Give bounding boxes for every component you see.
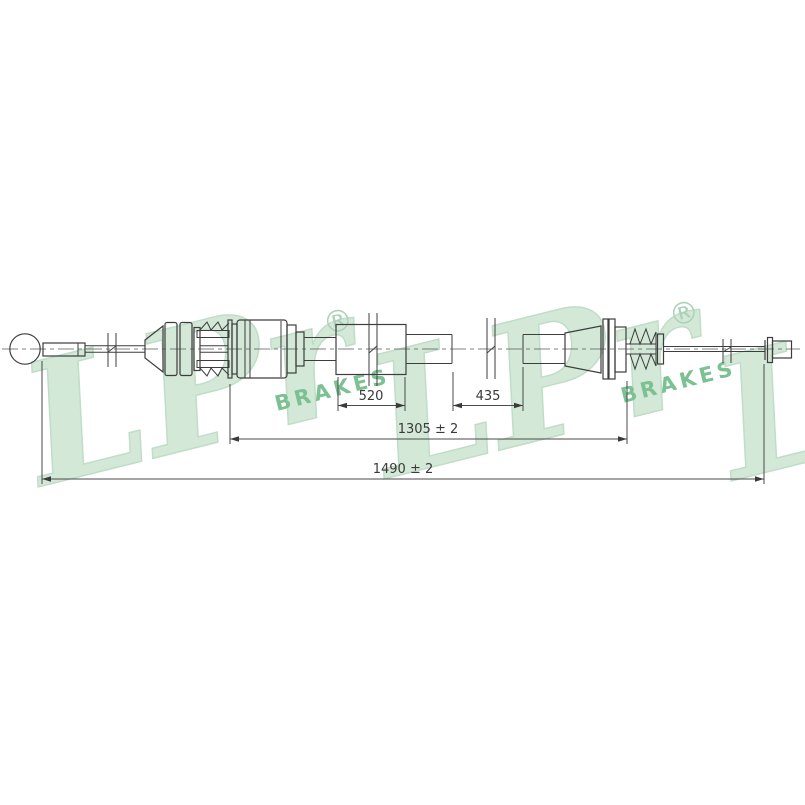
brake-cable-technical-drawing: LPr ® BRAKES LPr ® BRAKES LPr ® BRAKES <box>0 0 805 805</box>
dim-label-520: 520 <box>359 389 384 404</box>
watermark-brand-text: LPr <box>693 244 805 520</box>
watermark-left: LPr ® BRAKES <box>0 245 405 526</box>
drawing-canvas: LPr ® BRAKES LPr ® BRAKES LPr ® BRAKES <box>0 0 805 805</box>
dim-label-435: 435 <box>476 389 501 404</box>
dim-label-1305: 1305 ± 2 <box>398 422 459 437</box>
dim-label-1490: 1490 ± 2 <box>373 462 434 477</box>
watermark-corner: LPr ® BRAKES <box>693 239 805 520</box>
